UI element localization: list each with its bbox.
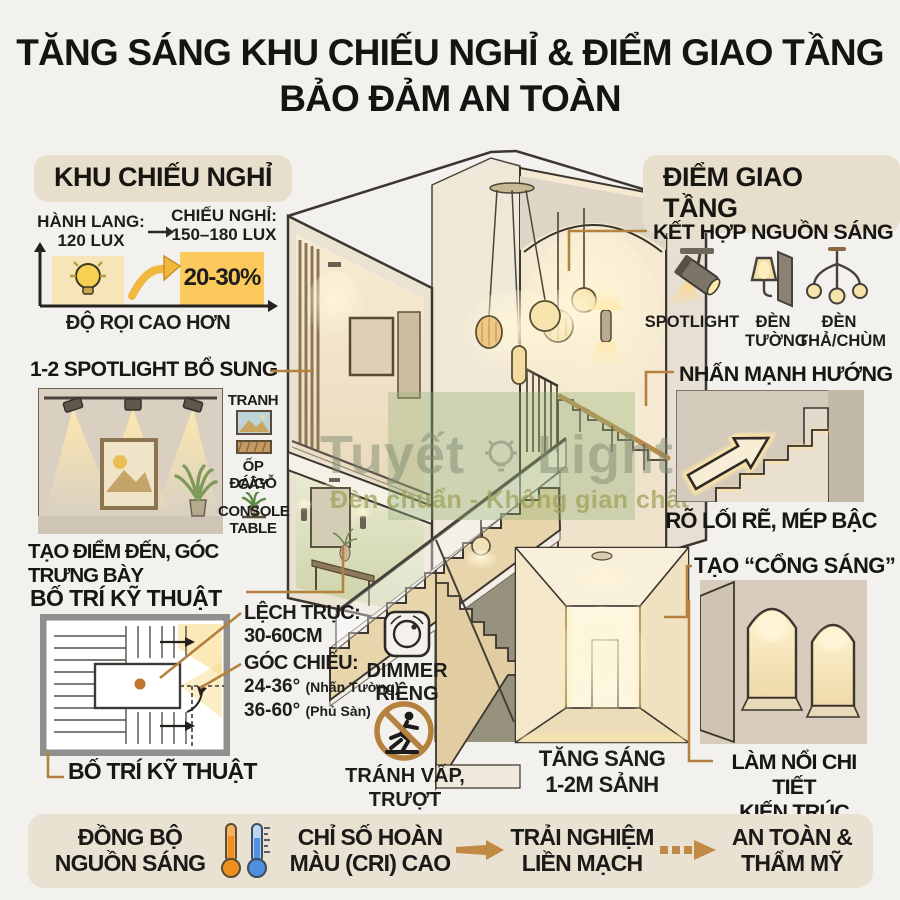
spotlight-fixture-icon — [650, 246, 736, 310]
technical-caption: BỐ TRÍ KỸ THUẬT — [68, 758, 257, 785]
gate-heading: TẠO “CỔNG SÁNG” — [694, 553, 895, 579]
wall-lamp-icon — [750, 250, 794, 310]
direction-stairs-scene — [676, 390, 864, 502]
warm-thermometer-icon — [222, 824, 240, 877]
left-section-badge: KHU CHIẾU NGHỈ — [34, 155, 292, 202]
arch-niche — [742, 609, 802, 710]
infographic-canvas: Tuyết Lights Đèn chuẩn - Không gian chất… — [0, 0, 900, 900]
technical-heading: BỐ TRÍ KỸ THUẬT — [30, 585, 222, 612]
lux-increase-value: 20-30% — [180, 264, 264, 292]
lux-axis-label: ĐỘ RỌI CAO HƠN — [36, 312, 260, 335]
watermark-tagline: Đèn chuẩn - Không gian chất — [330, 486, 689, 515]
dimmer-icon — [383, 610, 431, 658]
watermark-brand-word1: Tuyết — [320, 425, 465, 485]
source-pendant-label: ĐÈN THẢ/CHÙM — [798, 313, 880, 351]
legend-tranh-label: TRANH — [224, 392, 282, 409]
angle-floor-row: 36-60° (Phủ Sàn) — [244, 700, 371, 722]
watermark-brand: Tuyết Lights — [320, 424, 705, 486]
page-title: TĂNG SÁNG KHU CHIẾU NGHỈ & ĐIỂM GIAO TẦN… — [0, 30, 900, 122]
lux-to-label: CHIẾU NGHỈ: 150–180 LUX — [168, 206, 280, 244]
arch-niche — [807, 625, 859, 717]
spotlight-heading: 1-2 SPOTLIGHT BỔ SUNG — [30, 358, 278, 382]
footer-item-safety: AN TOÀN & THẨM MỸ — [718, 824, 866, 876]
floor-plan — [40, 614, 230, 756]
footer-arrow-icon — [456, 838, 504, 862]
chandelier-icon — [806, 246, 868, 308]
watermark-bulb-icon — [481, 435, 521, 479]
thermometer-icons — [214, 820, 276, 882]
source-spotlight-label: SPOTLIGHT — [642, 313, 742, 332]
legend-console-label: CONSOLE TABLE — [218, 503, 288, 537]
wood-stone-icon — [236, 440, 272, 454]
offset-label: LỆCH TRỤC: 30-60CM — [244, 602, 360, 648]
sources-heading: KẾT HỢP NGUỒN SÁNG — [653, 220, 893, 245]
spotlight-caption: TẠO ĐIỂM ĐẾN, GÓC TRƯNG BÀY — [28, 540, 288, 588]
footer-dashed-arrow-icon — [660, 838, 716, 862]
spotlight-wall-scene — [38, 388, 223, 534]
direction-heading: NHẤN MẠNH HƯỚNG — [679, 362, 893, 387]
angle-label: GÓC CHIẾU: — [244, 652, 358, 675]
footer-item-sync: ĐỒNG BỘ NGUỒN SÁNG — [52, 824, 208, 876]
no-slip-label: TRÁNH VẤP, TRƯỢT — [342, 764, 468, 812]
title-line-1: TĂNG SÁNG KHU CHIẾU NGHỈ & ĐIỂM GIAO TẦN… — [0, 30, 900, 76]
hall-caption: TĂNG SÁNG 1-2M SẢNH — [512, 746, 692, 798]
direction-caption: RÕ LỐI RẼ, MÉP BẬC — [664, 508, 878, 534]
footer-item-experience: TRẢI NGHIỆM LIỀN MẠCH — [506, 824, 658, 876]
legend-cay-label: CÂY — [224, 476, 282, 493]
footer-item-cri: CHỈ SỐ HOÀN MÀU (CRI) CAO — [282, 824, 458, 876]
source-wall-label: ĐÈN TƯỜNG — [745, 313, 801, 351]
no-slip-icon — [373, 700, 435, 762]
cool-thermometer-icon — [248, 824, 270, 877]
gate-arches-scene — [700, 580, 867, 744]
picture-icon — [236, 410, 272, 435]
title-line-2: BẢO ĐẢM AN TOÀN — [0, 76, 900, 122]
